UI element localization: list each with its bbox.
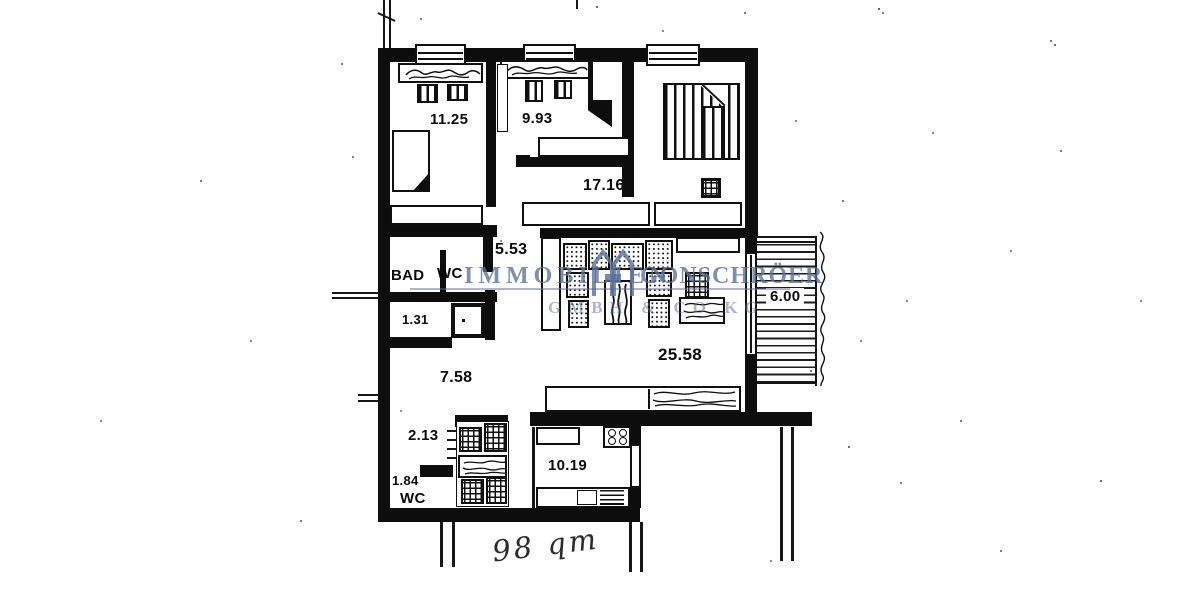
drainer-icon xyxy=(600,490,624,506)
wall-shaft-right xyxy=(485,290,495,340)
window-mullion xyxy=(649,52,697,54)
site-line-top-left-b xyxy=(389,0,391,48)
sink-icon xyxy=(577,490,597,505)
sideboard-icon xyxy=(676,237,740,253)
site-line-left-d xyxy=(358,400,378,402)
dimension-tick-icon xyxy=(377,12,395,22)
door-hinge-tick xyxy=(447,439,456,441)
watermark-underline xyxy=(410,288,790,290)
wall-under-bedroom1 xyxy=(378,225,497,237)
door-hinge-tick xyxy=(447,430,456,432)
door-hinge-tick xyxy=(447,457,456,459)
room-label-living: 25.58 xyxy=(658,345,702,365)
room-label-wc-lower: WC xyxy=(400,490,426,507)
wall-under-bedroom2 xyxy=(530,157,633,167)
wall-bedroom-divider xyxy=(486,62,496,207)
room-label-hall: 7.58 xyxy=(440,369,472,387)
balcony-bottom-line xyxy=(757,382,817,384)
wall-living-right-bottom xyxy=(745,356,757,426)
bed-icon xyxy=(554,80,572,99)
balcony-top-line-b xyxy=(755,241,817,243)
watermark-word-name: GONSCHRÖER xyxy=(640,263,823,290)
window-mullion xyxy=(526,52,573,54)
burner-icon xyxy=(619,437,627,445)
bed-headboard-icon xyxy=(398,63,483,83)
paper-specks xyxy=(341,63,343,65)
room-label-dining: 17.16 xyxy=(583,177,625,195)
site-line-left-c xyxy=(358,394,378,396)
bed-icon xyxy=(447,84,468,101)
wardrobe-icon xyxy=(701,106,725,160)
appliance-icon xyxy=(459,427,482,452)
room-label-wc-upper: WC xyxy=(437,265,463,282)
wall-living-bottom xyxy=(530,412,812,426)
site-line-left-b xyxy=(332,297,378,299)
sideboard-icon xyxy=(538,137,630,157)
wall-vestibule-bottom xyxy=(420,465,453,477)
stub-right-a xyxy=(780,427,783,561)
shelf-wavy-icon xyxy=(458,455,507,478)
room-label-bedroom1: 11.25 xyxy=(430,111,468,128)
sideboard-icon xyxy=(522,202,650,226)
door-hinge-tick xyxy=(447,448,456,450)
room-label-storage: 1.31 xyxy=(402,312,429,327)
window-mullion xyxy=(418,52,463,54)
bed-headboard-icon xyxy=(500,60,590,79)
door-fold-icon xyxy=(588,100,612,127)
balcony-torn-edge xyxy=(814,230,836,388)
wood-grain-texture xyxy=(650,388,738,410)
burner-icon xyxy=(608,429,616,437)
squiggle-texture xyxy=(401,66,482,82)
burner-icon xyxy=(619,429,627,437)
shaft-dot xyxy=(462,319,465,322)
door-jamb-bedroom2 xyxy=(516,155,530,167)
site-line-top-left-a xyxy=(383,0,385,48)
stub-right-b xyxy=(791,427,794,561)
balcony-label: 6.00 xyxy=(766,288,804,305)
appliance-icon xyxy=(484,423,507,452)
site-line-left-a xyxy=(332,292,378,294)
stub-below-kitchen-b xyxy=(640,522,643,572)
stove-burners-icon xyxy=(603,426,631,448)
wall-left xyxy=(378,48,390,522)
room-label-bath: BAD xyxy=(391,267,424,284)
wall-below-bath-wc xyxy=(378,292,497,302)
installation-shaft xyxy=(451,303,485,338)
stub-below-left-a xyxy=(440,522,443,567)
room-label-kitchen: 10.19 xyxy=(548,457,587,474)
window-mullion xyxy=(649,58,697,60)
stub-below-kitchen-a xyxy=(629,522,632,572)
wardrobe-icon xyxy=(497,64,508,132)
squiggle-texture xyxy=(503,63,589,78)
site-line-top-mid xyxy=(576,0,578,9)
floor-plan-scan: 11.25 9.93 17.16 5.53 BAD WC 1.31 7.58 2… xyxy=(0,0,1200,600)
window-kitchen xyxy=(630,444,641,488)
sideboard-icon xyxy=(654,202,742,226)
wall-right-upper xyxy=(745,48,758,238)
handwritten-area-note: 98 qm xyxy=(490,522,601,569)
room-label-corridor: 5.53 xyxy=(495,241,527,259)
appliance-icon xyxy=(461,479,484,504)
window-mullion xyxy=(418,58,463,60)
appliance-icon xyxy=(486,477,507,504)
wall-kitchen-left-line xyxy=(532,427,535,508)
stub-below-left-b xyxy=(452,522,455,567)
burner-icon xyxy=(608,437,616,445)
room-label-vestibule: 2.13 xyxy=(408,427,438,444)
watermark-line2: GMBH & CO KG xyxy=(548,298,765,318)
wall-bottom xyxy=(378,508,640,522)
squiggle-texture xyxy=(461,458,506,477)
bed-icon xyxy=(525,80,543,102)
sofa-icon xyxy=(545,386,741,412)
room-label-bedroom2: 9.93 xyxy=(522,110,552,127)
plant-stand-icon xyxy=(701,178,721,198)
balcony-top-line-a xyxy=(755,236,817,238)
wall-living-right-top xyxy=(745,237,757,252)
sideboard-icon xyxy=(390,205,483,225)
window-dining xyxy=(646,44,700,66)
h-houses-logo xyxy=(590,246,636,298)
kitchen-counter-icon xyxy=(536,427,580,445)
bed-icon xyxy=(417,84,438,103)
wall-below-storage xyxy=(385,337,452,348)
room-label-wc-lower-area: 1.84 xyxy=(392,473,419,488)
